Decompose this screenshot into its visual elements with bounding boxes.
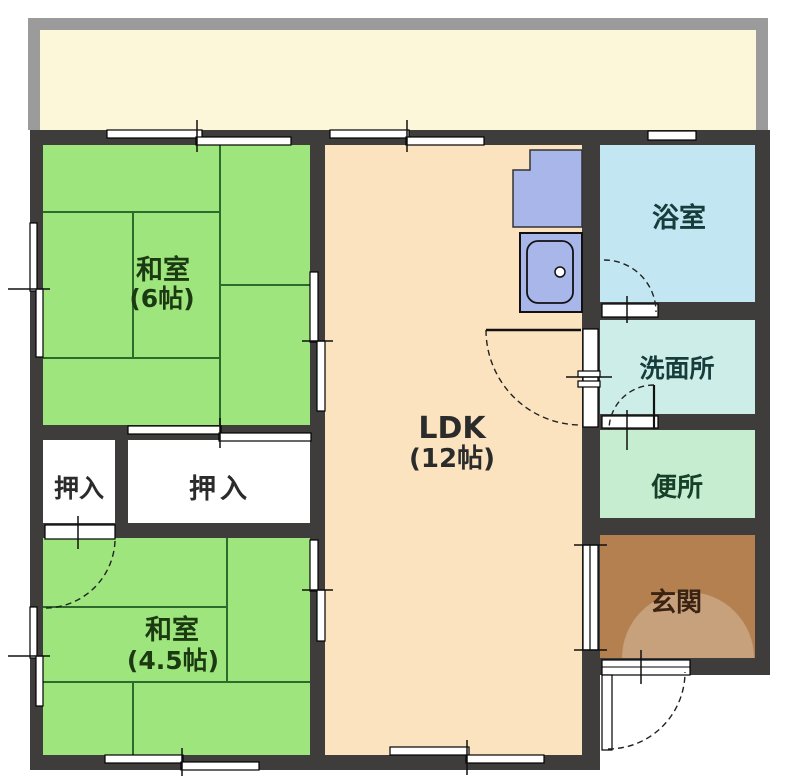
- door-bath-panel: [602, 304, 658, 317]
- label-oshiire-right: 押入: [189, 474, 251, 505]
- label-oshiire-left: 押入: [54, 474, 104, 503]
- window-ldk-bottom-b: [466, 755, 544, 763]
- label-ldk-name: LDK: [418, 411, 487, 446]
- window-ldk-top-a: [330, 130, 409, 138]
- label-washitsu6-size: (6帖): [129, 284, 194, 313]
- label-toilet: 便所: [651, 473, 703, 503]
- entrance-door-panel: [602, 675, 612, 750]
- window-washitsu6-top-a: [107, 130, 202, 138]
- label-washitsu45-size: (4.5帖): [127, 646, 219, 675]
- window-washitsu45-bottom-a: [105, 755, 183, 763]
- sink-drain: [555, 267, 565, 277]
- label-washitsu6-name: 和室: [136, 254, 190, 286]
- balcony-floor: [40, 30, 756, 130]
- label-ldk-size: (12帖): [409, 444, 495, 474]
- window-washitsu6-left-b: [36, 289, 43, 357]
- balcony: [28, 18, 768, 130]
- window-washitsu6-top-b: [196, 137, 291, 145]
- slider-washitsu6-ldk-a: [310, 272, 318, 342]
- label-washroom: 洗面所: [639, 354, 714, 383]
- slider-oshiire-right-b: [219, 433, 311, 441]
- label-washitsu45-name: 和室: [145, 614, 199, 646]
- label-bath: 浴室: [652, 202, 706, 234]
- window-ldk-bottom-a: [390, 747, 469, 755]
- slider-washitsu45-ldk-a: [310, 540, 318, 591]
- doorway-jamb-a: [578, 371, 600, 377]
- doorway-jamb-b: [578, 381, 600, 387]
- doorway-ldk-washroom: [583, 329, 598, 427]
- window-washitsu45-left-a: [30, 607, 37, 658]
- door-arc-entrance: [608, 672, 685, 749]
- window-washitsu45-bottom-b: [181, 762, 259, 770]
- slider-washitsu6-ldk-b: [317, 341, 325, 411]
- label-entrance: 玄関: [650, 587, 702, 618]
- slider-washitsu45-ldk-b: [317, 590, 325, 641]
- slider-oshiire-right-a: [128, 426, 221, 434]
- window-ldk-top-b: [406, 137, 484, 145]
- window-washitsu45-left-b: [36, 656, 43, 706]
- floor-plan-svg: 和室 (6帖) 押入 押入 和室 (4.5帖) LDK (12帖) 浴室 洗面所…: [0, 0, 800, 778]
- floor-plan: 和室 (6帖) 押入 押入 和室 (4.5帖) LDK (12帖) 浴室 洗面所…: [0, 0, 800, 778]
- window-washitsu6-left-a: [30, 223, 37, 291]
- door-oshiire-left-panel: [45, 525, 115, 539]
- window-bath-top: [648, 131, 696, 140]
